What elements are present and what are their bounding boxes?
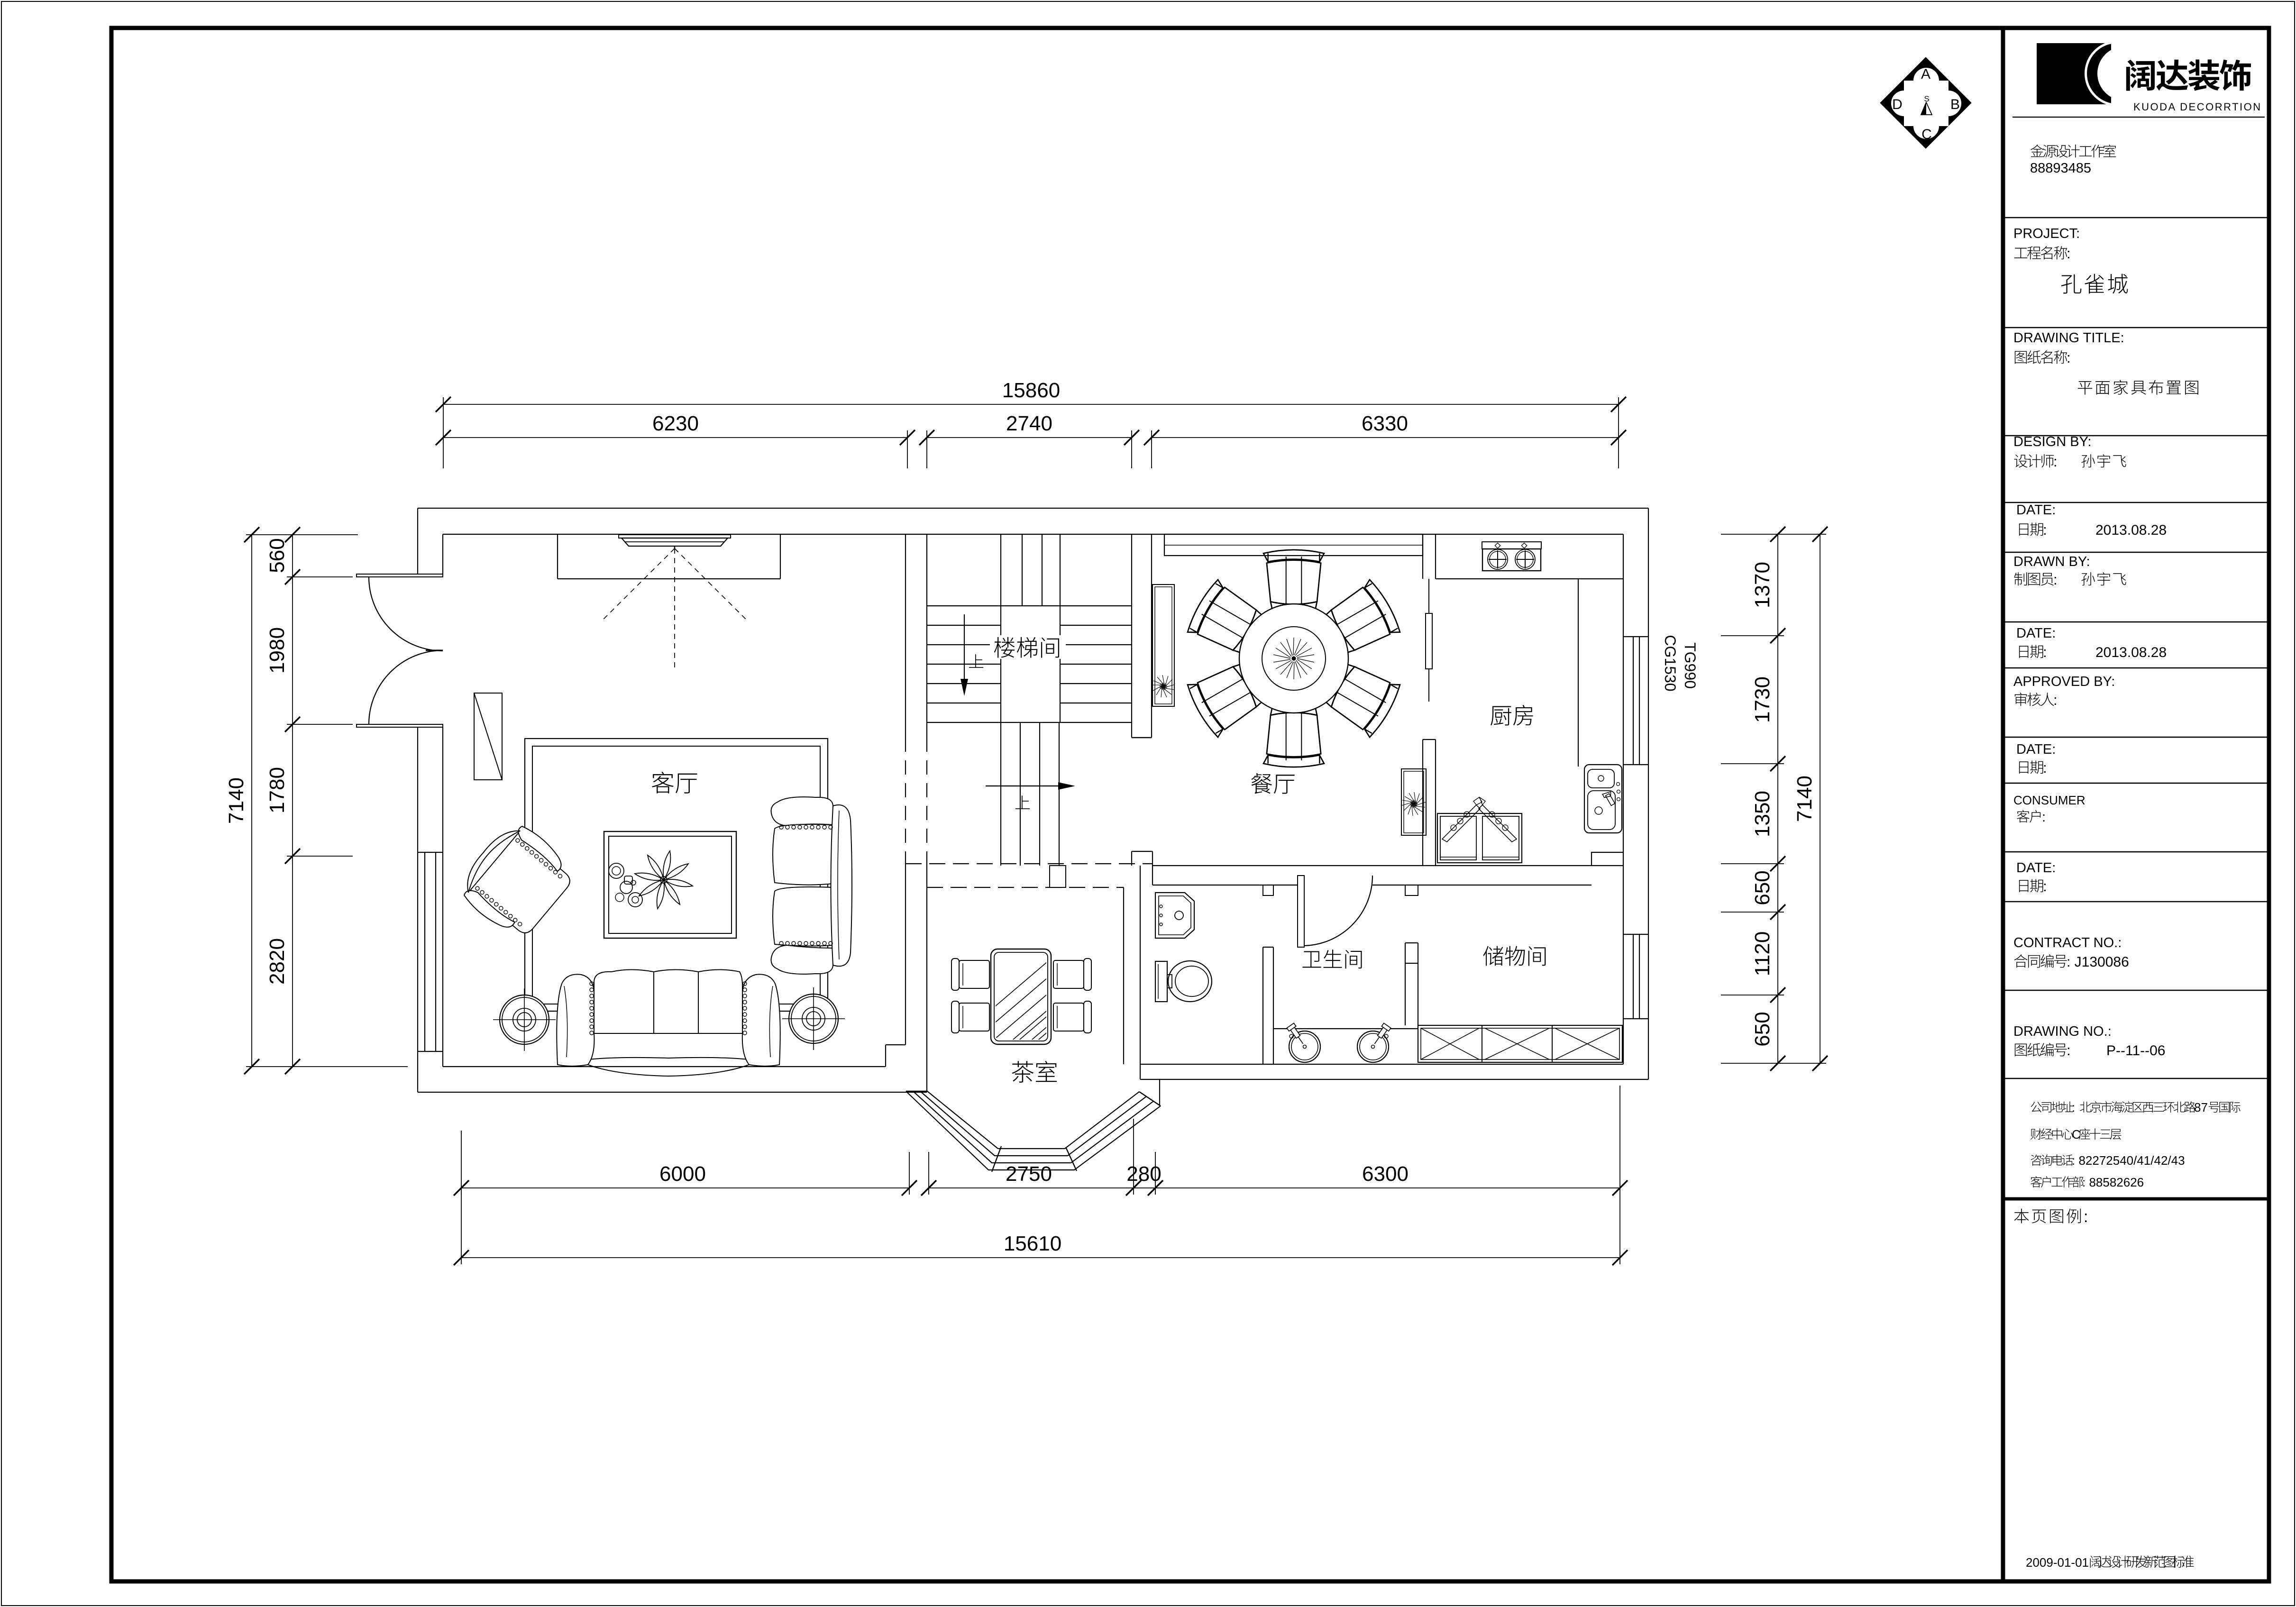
svg-text:B: B <box>1950 97 1960 112</box>
svg-text::: : <box>2043 644 2047 660</box>
svg-text:DRAWING NO.:: DRAWING NO.: <box>2013 1024 2112 1039</box>
svg-text:APPROVED BY:: APPROVED BY: <box>2013 674 2115 689</box>
svg-text:2013.08.28: 2013.08.28 <box>2095 645 2167 660</box>
svg-text::: : <box>2053 571 2058 588</box>
svg-text:1730: 1730 <box>1751 676 1774 723</box>
svg-text::: : <box>2072 1100 2075 1114</box>
svg-text::: : <box>2043 759 2047 776</box>
svg-text::: : <box>2053 453 2058 470</box>
svg-text:560: 560 <box>265 538 289 573</box>
svg-text:6000: 6000 <box>659 1162 706 1186</box>
svg-text:C: C <box>1921 127 1932 142</box>
svg-text:S: S <box>1924 94 1929 103</box>
svg-text:7140: 7140 <box>225 777 248 824</box>
svg-text:15610: 15610 <box>1004 1232 1061 1255</box>
svg-text:6300: 6300 <box>1362 1162 1409 1186</box>
svg-text::: : <box>2043 521 2047 538</box>
svg-text::: : <box>2084 1208 2088 1226</box>
svg-text:DRAWN BY:: DRAWN BY: <box>2013 554 2090 569</box>
svg-text:650: 650 <box>1751 1012 1774 1046</box>
svg-text:DATE:: DATE: <box>2016 502 2056 518</box>
svg-text:CONTRACT NO.:: CONTRACT NO.: <box>2013 935 2122 950</box>
svg-text:DRAWING TITLE:: DRAWING TITLE: <box>2013 330 2124 346</box>
svg-text:CG1530: CG1530 <box>1662 635 1679 691</box>
svg-text:CONSUMER: CONSUMER <box>2013 793 2086 807</box>
svg-text::: : <box>2043 878 2047 895</box>
svg-text:2750: 2750 <box>1006 1162 1052 1186</box>
svg-text:2009-01-01: 2009-01-01 <box>2026 1555 2089 1570</box>
svg-text:6330: 6330 <box>1362 412 1408 435</box>
svg-text:1350: 1350 <box>1751 791 1774 837</box>
svg-text::: : <box>2042 810 2046 825</box>
svg-text:PROJECT:: PROJECT: <box>2013 226 2080 241</box>
svg-text:1370: 1370 <box>1751 562 1774 608</box>
svg-text:P--11--06: P--11--06 <box>2106 1043 2165 1059</box>
svg-text:TG990: TG990 <box>1682 642 1699 689</box>
svg-text:A: A <box>1921 66 1930 82</box>
svg-text:88893485: 88893485 <box>2030 161 2091 176</box>
svg-text:2013.08.28: 2013.08.28 <box>2095 522 2167 538</box>
svg-text:1980: 1980 <box>265 627 289 674</box>
svg-text:2820: 2820 <box>265 938 289 985</box>
svg-text:: 82272540/41/42/43: : 82272540/41/42/43 <box>2072 1153 2185 1168</box>
svg-text:1780: 1780 <box>265 767 289 813</box>
svg-text:DATE:: DATE: <box>2016 860 2056 876</box>
svg-text:: 88582626: : 88582626 <box>2082 1175 2144 1189</box>
svg-text::: : <box>2067 245 2071 262</box>
svg-text:7140: 7140 <box>1793 776 1816 822</box>
svg-text:280: 280 <box>1126 1162 1161 1186</box>
svg-text:15860: 15860 <box>1002 379 1060 402</box>
svg-text:2740: 2740 <box>1006 412 1052 435</box>
svg-text:650: 650 <box>1751 870 1774 905</box>
svg-text:D: D <box>1892 97 1903 112</box>
svg-text:6230: 6230 <box>652 412 699 435</box>
svg-text:: J130086: : J130086 <box>2067 954 2129 970</box>
svg-text::: : <box>2067 1042 2071 1059</box>
svg-text:87: 87 <box>2194 1100 2208 1114</box>
svg-text:1120: 1120 <box>1751 931 1774 977</box>
svg-text::: : <box>2067 349 2071 366</box>
svg-text:DESIGN BY:: DESIGN BY: <box>2013 434 2091 449</box>
svg-text::: : <box>2053 692 2058 708</box>
svg-text:DATE:: DATE: <box>2016 742 2056 757</box>
svg-text:KUODA DECORRTION: KUODA DECORRTION <box>2133 101 2262 113</box>
svg-text:DATE:: DATE: <box>2016 626 2056 641</box>
